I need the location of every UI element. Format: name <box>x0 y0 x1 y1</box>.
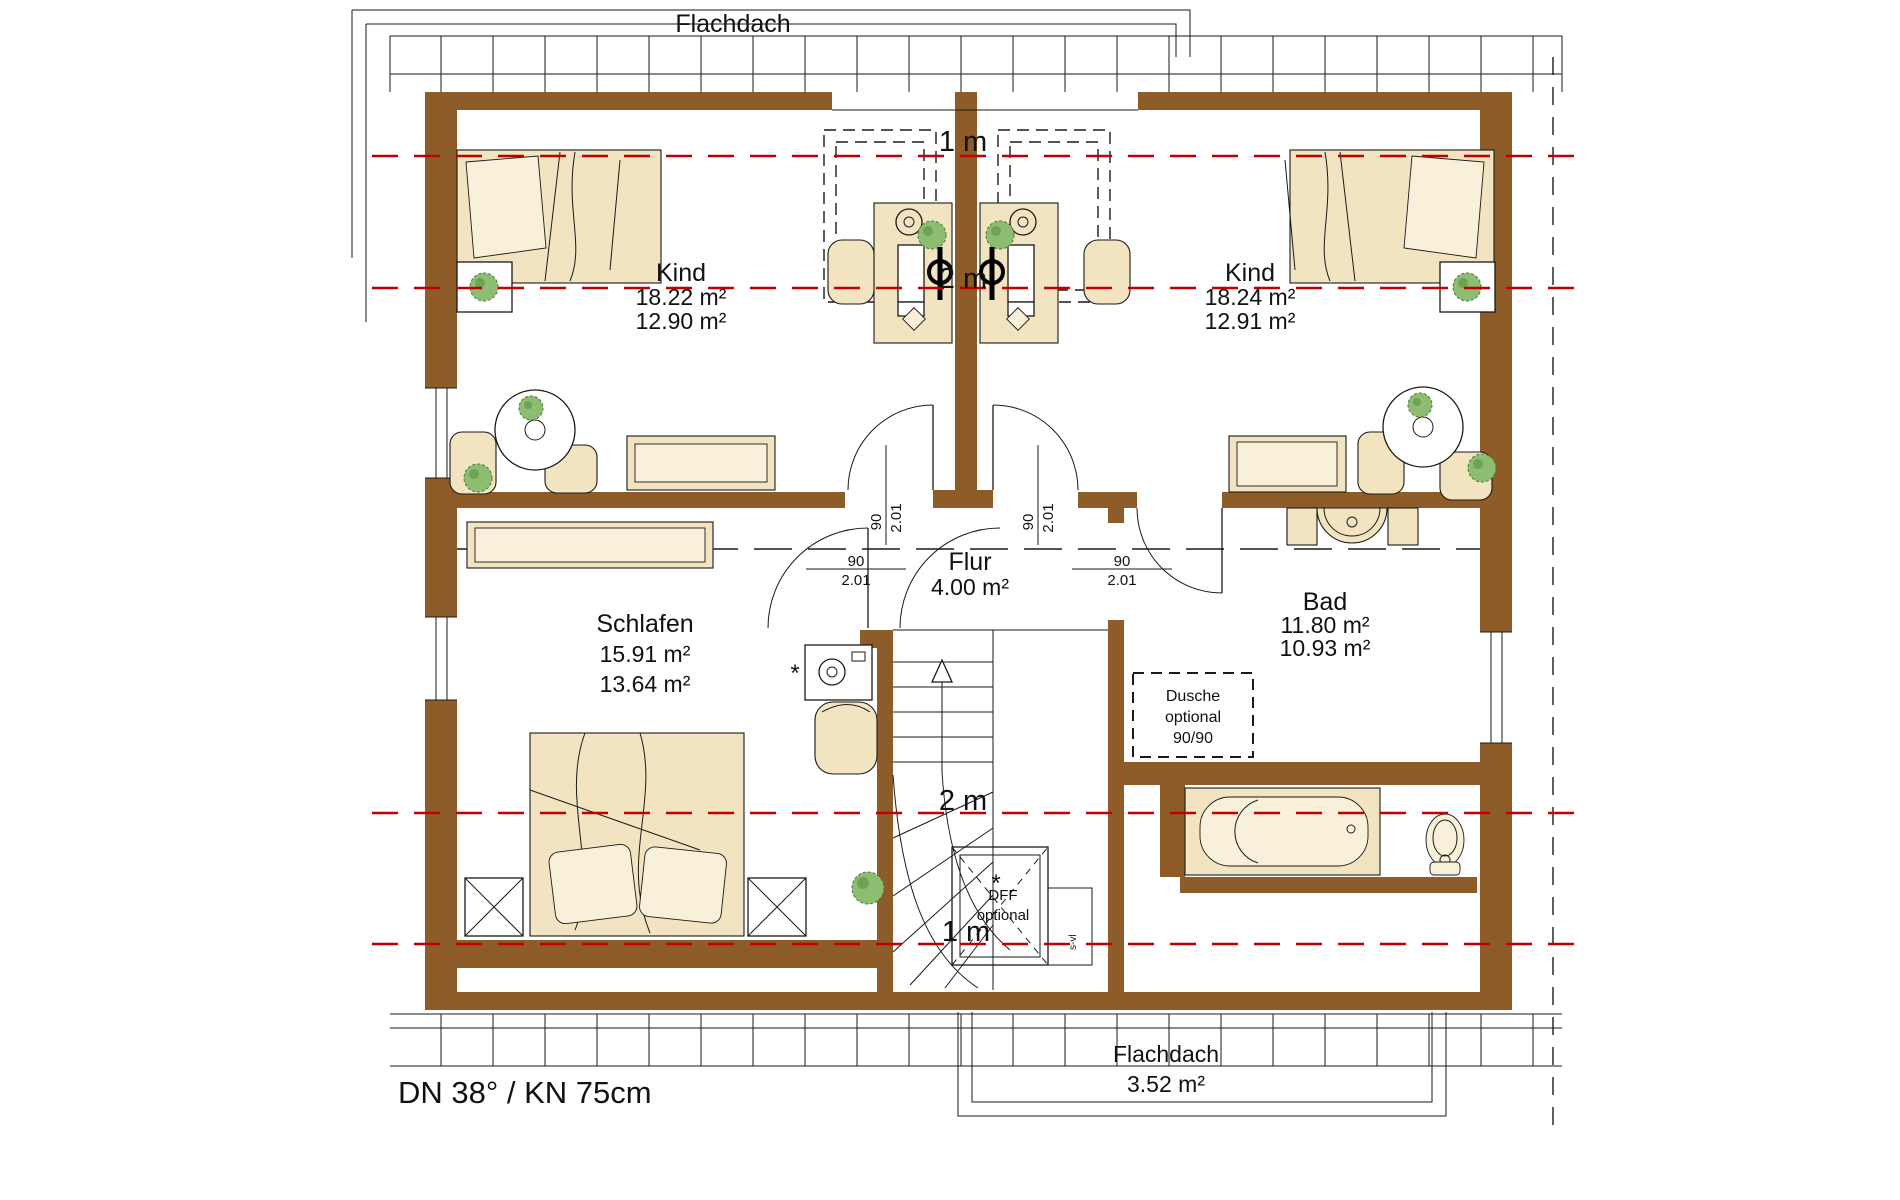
label-1m-top: 1 m <box>939 126 987 158</box>
wall-tub-left <box>1160 785 1185 877</box>
wall-middle-right-a <box>1078 492 1137 508</box>
shower-label-line3: 90/90 <box>1173 730 1213 747</box>
plant-icon <box>918 221 946 249</box>
door-width-label: 90 <box>848 553 865 570</box>
label-2m-bottom: 2 m <box>939 785 987 817</box>
roof-spec-label: DN 38° / KN 75cm <box>398 1075 652 1110</box>
sideboard-schlafen <box>467 522 713 568</box>
wall-top-left <box>425 92 832 110</box>
wall-middle-left <box>457 492 845 508</box>
wall-stair-right <box>1108 620 1124 992</box>
nightstand-schlafen-right <box>748 878 806 936</box>
pillow <box>639 846 728 924</box>
plant-icon <box>986 221 1014 249</box>
sitting-area-left <box>450 390 597 494</box>
room-label-schlafen: Schlafen 15.91 m² 13.64 m² <box>596 610 693 697</box>
sideboard-kind-left <box>627 436 775 490</box>
sink-basin <box>1317 508 1387 543</box>
toilet <box>1426 814 1464 875</box>
room-name: Schlafen <box>596 610 693 638</box>
floorplan-canvas: 90 2.01 90 2.01 90 2.01 90 2.01 <box>0 0 1900 1200</box>
wall-left <box>425 92 457 1010</box>
door-schlafen: 90 2.01 <box>768 528 906 628</box>
bed-schlafen <box>530 733 744 936</box>
shower-label-line1: Dusche <box>1166 688 1220 705</box>
desk-kind-right <box>1229 436 1346 492</box>
room-area-net: 12.91 m² <box>1205 308 1296 334</box>
window-left-lower <box>425 617 457 700</box>
wall-stair-right-stub <box>1108 508 1124 523</box>
door-height-label: 2.01 <box>841 572 870 589</box>
shower-optional-box: Dusche optional 90/90 <box>1133 673 1253 757</box>
sitting-area-right <box>1358 387 1496 500</box>
room-area: 4.00 m² <box>931 574 1009 600</box>
door-width-label: 90 <box>868 514 885 531</box>
wall-bath-knee-top <box>1124 762 1480 785</box>
pillow <box>548 843 638 924</box>
stair-direction-arrow <box>932 660 952 682</box>
nightstand-schlafen-left <box>465 878 523 936</box>
side-chair <box>1084 240 1130 304</box>
room-name: Kind <box>656 259 706 287</box>
flat-roof-top-label: Flachdach <box>675 10 790 38</box>
stair-side-label: s-vl <box>1068 934 1079 950</box>
desk <box>898 245 924 302</box>
room-label-flur: Flur 4.00 m² <box>931 548 1009 600</box>
wall-bath-knee-bottom <box>1180 877 1477 893</box>
shower-label-line2: optional <box>1165 709 1221 726</box>
flat-roof-bottom-name: Flachdach <box>1113 1041 1219 1067</box>
room-name: Kind <box>1225 259 1275 287</box>
wall-divider-tbar <box>933 490 993 508</box>
room-area-net: 12.90 m² <box>636 308 727 334</box>
door-height-label: 2.01 <box>1107 572 1136 589</box>
bathtub <box>1185 788 1380 875</box>
stair-shaft <box>1048 888 1092 965</box>
room-area-net: 13.64 m² <box>600 671 691 697</box>
desk-group-left <box>828 203 952 343</box>
roof-hatch-top <box>390 36 1562 92</box>
washing-machine <box>805 645 872 700</box>
door-height-label: 2.01 <box>888 503 905 532</box>
armchair-schlafen <box>815 702 877 774</box>
wall-top-right <box>1138 92 1512 110</box>
plant-icon <box>1408 393 1432 417</box>
door-height-label: 2.01 <box>1040 503 1057 532</box>
room-label-kind-right: Kind 18.24 m² 12.91 m² <box>1205 259 1296 334</box>
door-kind-left: 90 2.01 <box>848 405 933 545</box>
asterisk-washer: * <box>790 660 799 687</box>
plant-icon <box>1468 454 1496 482</box>
staircase: s-vl <box>893 630 1108 990</box>
flat-roof-bottom-area: 3.52 m² <box>1127 1071 1205 1097</box>
room-area-gross: 15.91 m² <box>600 641 691 667</box>
door-bad: 90 2.01 <box>1072 508 1222 593</box>
sink-vanity <box>1287 508 1418 545</box>
asterisk-dff: * <box>991 870 1000 897</box>
plant-icon <box>519 396 543 420</box>
desk <box>1008 245 1034 302</box>
door-width-label: 90 <box>1020 514 1037 531</box>
room-label-bad: Bad 11.80 m² 10.93 m² <box>1280 588 1371 661</box>
label-1m-bottom: 1 m <box>942 916 990 948</box>
door-kind-right: 90 2.01 <box>993 405 1078 545</box>
label-2m-top: 2 m <box>939 263 987 295</box>
room-area-net: 10.93 m² <box>1280 635 1371 661</box>
side-chair <box>828 240 874 304</box>
roof-hatch-bottom <box>390 1014 1562 1066</box>
window-right <box>1480 632 1512 743</box>
plant-icon <box>464 464 492 492</box>
wall-stair-left <box>877 648 893 992</box>
door-width-label: 90 <box>1114 553 1131 570</box>
plant-stair-corner <box>852 872 884 904</box>
wall-bottom <box>425 992 1512 1010</box>
room-name: Flur <box>948 548 991 576</box>
floorplan-drawing: 90 2.01 90 2.01 90 2.01 90 2.01 <box>0 0 1900 1200</box>
